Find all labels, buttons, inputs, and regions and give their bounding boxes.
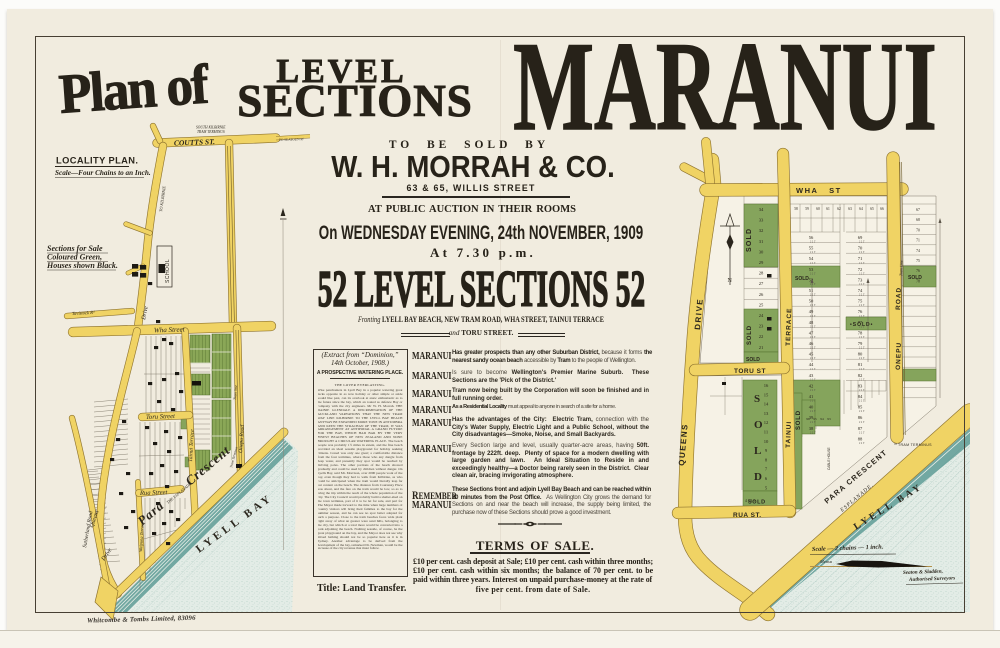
svg-text:59: 59 (805, 207, 809, 211)
svg-text:28: 28 (759, 271, 764, 276)
svg-text:2 2 5´: 2 2 5´ (810, 272, 816, 275)
svg-text:72: 72 (858, 267, 863, 272)
svg-text:63: 63 (848, 207, 852, 211)
svg-text:TERRACE: TERRACE (785, 307, 793, 346)
svg-text:11: 11 (764, 430, 769, 435)
svg-text:30: 30 (759, 249, 764, 254)
svg-text:45: 45 (809, 352, 814, 357)
svg-text:75: 75 (858, 299, 863, 304)
svg-text:60: 60 (816, 207, 820, 211)
svg-text:12: 12 (764, 420, 769, 425)
svg-text:Sutherland Road: Sutherland Road (82, 511, 94, 549)
svg-text:2 2 5´: 2 2 5´ (859, 315, 865, 318)
svg-text:O: O (754, 419, 763, 431)
svg-text:84: 84 (858, 394, 863, 399)
svg-text:ROAD: ROAD (895, 287, 903, 310)
svg-text:2 2 5´: 2 2 5´ (859, 421, 865, 424)
svg-text:Measu: Measu (819, 559, 833, 564)
svg-text:40: 40 (809, 405, 814, 410)
svg-text:83: 83 (858, 383, 863, 388)
svg-text:2 2 5´: 2 2 5´ (810, 410, 816, 413)
svg-text:2 2 5´: 2 2 5´ (810, 421, 816, 424)
svg-text:29: 29 (759, 260, 764, 265)
svg-text:68: 68 (916, 218, 920, 222)
svg-text:95: 95 (813, 417, 817, 421)
svg-text:21: 21 (759, 345, 764, 350)
svg-text:10: 10 (764, 439, 769, 444)
svg-text:SOLD: SOLD (795, 276, 809, 282)
svg-text:38: 38 (809, 426, 814, 431)
svg-text:2 2 5´: 2 2 5´ (810, 431, 816, 434)
svg-text:31: 31 (759, 239, 764, 244)
svg-text:56: 56 (809, 235, 814, 240)
svg-text:64: 64 (859, 207, 863, 211)
svg-text:16: 16 (764, 383, 769, 388)
svg-text:61: 61 (826, 207, 830, 211)
svg-text:2 2 5´: 2 2 5´ (859, 347, 865, 350)
svg-text:46: 46 (809, 341, 814, 346)
svg-text:WHA ST: WHA ST (796, 186, 842, 195)
svg-text:2 2 5´: 2 2 5´ (859, 272, 865, 275)
svg-text:2 2 5´: 2 2 5´ (810, 378, 816, 381)
svg-text:D: D (754, 471, 762, 483)
svg-text:14: 14 (764, 402, 769, 407)
svg-text:47: 47 (809, 330, 814, 335)
svg-text:41: 41 (809, 394, 814, 399)
svg-text:TAINUI: TAINUI (785, 421, 793, 448)
svg-text:26: 26 (759, 292, 764, 297)
svg-text:RUA ST.: RUA ST. (733, 512, 762, 519)
svg-text:2 2 5´: 2 2 5´ (810, 325, 816, 328)
svg-text:49: 49 (809, 309, 814, 314)
svg-text:58: 58 (794, 207, 798, 211)
svg-text:74: 74 (858, 288, 863, 293)
svg-text:2 2 5´: 2 2 5´ (810, 347, 816, 350)
svg-text:85: 85 (858, 405, 863, 410)
svg-text:51: 51 (809, 288, 814, 293)
svg-text:SOLD: SOLD (746, 228, 753, 252)
svg-text:25: 25 (759, 302, 764, 307)
svg-text:80: 80 (858, 352, 863, 357)
svg-text:2 2 5´: 2 2 5´ (859, 336, 865, 339)
svg-text:2 2 5´: 2 2 5´ (810, 336, 816, 339)
svg-text:SOLD: SOLD (746, 357, 760, 363)
svg-text:74: 74 (916, 249, 920, 253)
svg-text:S: S (754, 393, 760, 405)
svg-text:13: 13 (764, 411, 769, 416)
svg-text:76: 76 (916, 269, 920, 273)
svg-text:79: 79 (858, 341, 863, 346)
svg-text:2 2 5´: 2 2 5´ (810, 315, 816, 318)
svg-text:Tram Line: Tram Line (899, 260, 904, 276)
svg-text:24: 24 (759, 313, 764, 318)
svg-text:2 2 5´: 2 2 5´ (859, 389, 865, 392)
svg-text:78: 78 (858, 330, 863, 335)
svg-text:2 2 5´: 2 2 5´ (859, 442, 865, 445)
svg-text:73: 73 (858, 277, 863, 282)
svg-text:2 2 5´: 2 2 5´ (810, 389, 816, 392)
svg-text:2 2 5´: 2 2 5´ (810, 400, 816, 403)
svg-text:LOCALITY PLAN.: LOCALITY PLAN. (56, 156, 138, 166)
svg-text:65: 65 (870, 207, 874, 211)
svg-text:N: N (728, 278, 733, 284)
svg-text:ONEPU: ONEPU (895, 342, 903, 370)
svg-text:27: 27 (759, 281, 764, 286)
svg-text:62: 62 (837, 207, 841, 211)
svg-text:2 2 5´: 2 2 5´ (859, 251, 865, 254)
svg-text:2 2 5´: 2 2 5´ (859, 378, 865, 381)
svg-text:TRAM TERMINUS: TRAM TERMINUS (197, 130, 225, 134)
svg-text:•SOLD•: •SOLD• (850, 322, 873, 328)
svg-text:48: 48 (809, 320, 814, 325)
svg-text:Scale—Four Chains to an Inch.: Scale—Four Chains to an Inch. (55, 169, 151, 177)
svg-text:2 2 5´: 2 2 5´ (810, 304, 816, 307)
svg-text:2 2 5´: 2 2 5´ (859, 357, 865, 360)
svg-text:2 2 5´: 2 2 5´ (859, 304, 865, 307)
svg-text:Onepu Road: Onepu Road (238, 424, 246, 453)
svg-text:93: 93 (827, 417, 831, 421)
svg-text:82: 82 (858, 373, 863, 378)
svg-text:71: 71 (916, 239, 920, 243)
svg-text:88: 88 (858, 436, 863, 441)
svg-text:15: 15 (764, 392, 769, 397)
svg-text:66: 66 (880, 207, 884, 211)
svg-text:23: 23 (759, 324, 764, 329)
svg-text:Wha Street: Wha Street (154, 325, 186, 334)
svg-text:81: 81 (858, 362, 863, 367)
svg-text:22: 22 (759, 334, 764, 339)
svg-text:70: 70 (858, 246, 863, 251)
svg-text:TRAM TERMINUS: TRAM TERMINUS (898, 443, 932, 447)
svg-text:2 2 5´: 2 2 5´ (810, 357, 816, 360)
svg-text:33: 33 (759, 218, 764, 223)
svg-text:42: 42 (809, 383, 814, 388)
svg-text:2 2 5´: 2 2 5´ (859, 368, 865, 371)
svg-text:SOLD: SOLD (908, 275, 922, 281)
svg-text:86: 86 (858, 415, 863, 420)
svg-text:34: 34 (759, 207, 764, 212)
svg-text:71: 71 (858, 256, 863, 261)
svg-text:2 2 5´: 2 2 5´ (810, 251, 816, 254)
svg-text:SOLD: SOLD (747, 325, 753, 345)
svg-text:2 2 5´: 2 2 5´ (859, 283, 865, 286)
svg-text:Toru Street: Toru Street (146, 413, 175, 421)
svg-text:SOLD: SOLD (796, 410, 802, 430)
svg-text:50: 50 (809, 299, 814, 304)
svg-text:Houses shown Black.: Houses shown Black. (46, 261, 118, 270)
svg-text:70: 70 (916, 228, 920, 232)
svg-text:2 2 5´: 2 2 5´ (859, 294, 865, 297)
svg-text:94: 94 (820, 417, 824, 421)
svg-text:TORU ST: TORU ST (734, 368, 766, 375)
svg-text:SOLD: SOLD (748, 500, 766, 506)
svg-text:76: 76 (858, 309, 863, 314)
svg-text:2 2 5´: 2 2 5´ (810, 262, 816, 265)
svg-text:69: 69 (858, 235, 863, 240)
svg-text:COUTTS ST.: COUTTS ST. (174, 137, 215, 147)
svg-text:53: 53 (809, 267, 814, 272)
svg-text:67: 67 (916, 208, 920, 212)
svg-text:55: 55 (809, 246, 814, 251)
svg-text:2 2 5´: 2 2 5´ (859, 241, 865, 244)
svg-text:2 2 5´: 2 2 5´ (810, 241, 816, 244)
svg-text:L: L (754, 445, 761, 457)
svg-text:43: 43 (809, 373, 814, 378)
svg-text:2 2 5´: 2 2 5´ (859, 410, 865, 413)
svg-text:44: 44 (809, 362, 814, 367)
svg-text:87: 87 (858, 426, 863, 431)
svg-text:2 2 5´: 2 2 5´ (859, 431, 865, 434)
svg-text:54: 54 (809, 256, 814, 261)
svg-text:2 2 5´: 2 2 5´ (810, 283, 816, 286)
svg-text:96: 96 (806, 417, 810, 421)
svg-text:2 2 5´: 2 2 5´ (859, 262, 865, 265)
svg-text:32: 32 (759, 228, 764, 233)
svg-text:CABLE HOUSE: CABLE HOUSE (827, 447, 831, 470)
svg-text:Rua Street: Rua Street (139, 489, 168, 497)
svg-text:2 2 5´: 2 2 5´ (810, 368, 816, 371)
svg-text:2 2 5´: 2 2 5´ (859, 400, 865, 403)
svg-text:TO SEATOUN Rᵈ: TO SEATOUN Rᵈ (279, 137, 304, 142)
svg-text:2 2 5´: 2 2 5´ (810, 294, 816, 297)
svg-text:75: 75 (916, 259, 920, 263)
svg-text:SCHOOL: SCHOOL (165, 259, 171, 283)
